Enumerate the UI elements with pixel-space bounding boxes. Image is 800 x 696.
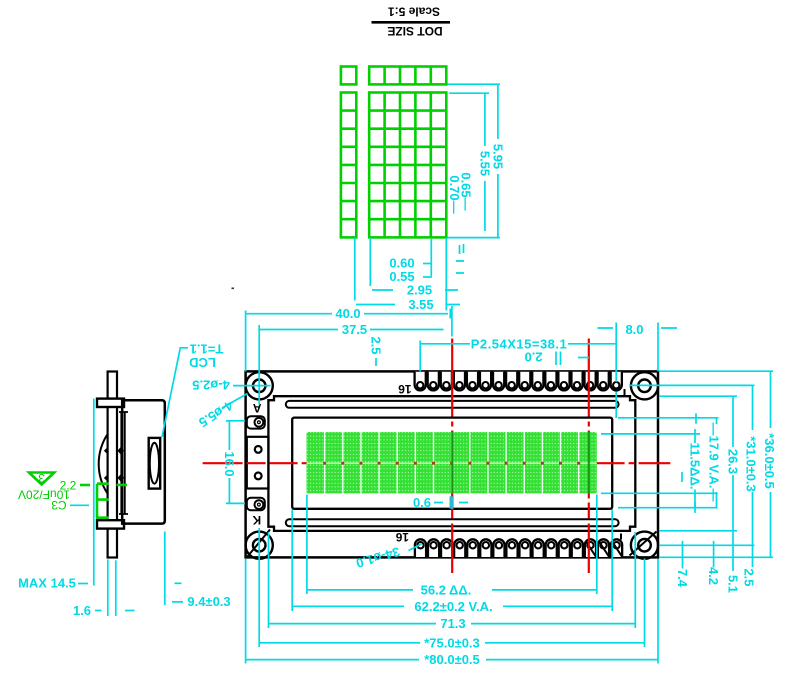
- svg-text:0.6: 0.6: [413, 495, 431, 510]
- svg-text:9.4±0.3: 9.4±0.3: [187, 594, 230, 609]
- svg-text:71.3: 71.3: [440, 616, 465, 631]
- svg-text:3: 3: [38, 471, 45, 485]
- svg-text:16: 16: [395, 530, 409, 544]
- svg-text:5.1: 5.1: [726, 575, 741, 593]
- svg-text:34-ø1.0: 34-ø1.0: [354, 544, 401, 571]
- svg-text:*75.0±0.3: *75.0±0.3: [424, 635, 480, 650]
- svg-text:K: K: [252, 513, 261, 527]
- svg-text:LCD: LCD: [189, 355, 216, 370]
- svg-text:C3: C3: [51, 498, 67, 512]
- svg-text:4.2: 4.2: [706, 567, 721, 585]
- svg-text:2.0: 2.0: [524, 350, 542, 365]
- svg-text:5.55: 5.55: [477, 151, 492, 176]
- svg-text:*31.0±0.3: *31.0±0.3: [744, 436, 759, 492]
- svg-text:3.55: 3.55: [408, 297, 433, 312]
- svg-text:DOT SIZE: DOT SIZE: [387, 24, 442, 38]
- svg-text:26.3: 26.3: [726, 449, 741, 474]
- svg-text:7.4: 7.4: [675, 569, 690, 588]
- svg-text:T=1.1: T=1.1: [190, 342, 224, 357]
- svg-text:40.0: 40.0: [335, 306, 360, 321]
- svg-text:*36.0±0.5: *36.0±0.5: [762, 433, 777, 489]
- svg-text:37.5: 37.5: [342, 322, 367, 337]
- svg-text:2.5: 2.5: [742, 568, 757, 586]
- svg-text:0.70—: 0.70—: [447, 175, 462, 213]
- svg-text:1.6: 1.6: [73, 603, 91, 618]
- svg-text:56.2 ΔΔ.: 56.2 ΔΔ.: [421, 582, 472, 597]
- svg-text:16: 16: [398, 382, 412, 396]
- svg-text:16.0: 16.0: [222, 451, 237, 476]
- svg-text:62.2±0.2 V.A.: 62.2±0.2 V.A.: [414, 599, 492, 614]
- svg-text:Scale 5:1: Scale 5:1: [388, 5, 440, 19]
- svg-text:2.95: 2.95: [407, 283, 432, 298]
- svg-text:MAX 14.5: MAX 14.5: [18, 576, 76, 591]
- svg-text:2.5: 2.5: [369, 336, 384, 354]
- svg-text:11.5ΔΔ.: 11.5ΔΔ.: [688, 443, 703, 490]
- svg-text:P2.54X15=38.1: P2.54X15=38.1: [471, 336, 568, 351]
- svg-text:8.0: 8.0: [625, 322, 643, 337]
- svg-text:4-ø2.5: 4-ø2.5: [192, 377, 230, 392]
- svg-text:*80.0±0.5: *80.0±0.5: [424, 652, 480, 667]
- svg-text:—17.9 V.A.—: —17.9 V.A.—: [707, 422, 722, 501]
- svg-text:A: A: [253, 401, 262, 415]
